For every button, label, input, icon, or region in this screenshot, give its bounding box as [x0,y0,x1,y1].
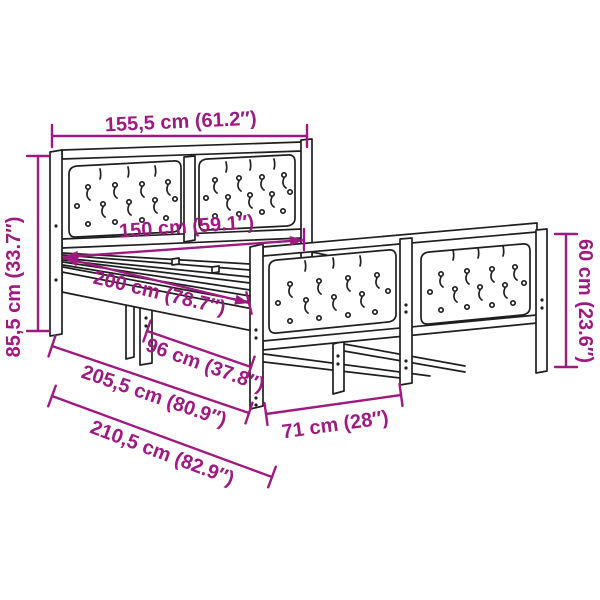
dimension-headboard-height: 85,5 cm (33.7″) [3,156,49,357]
dimension-label: 85,5 cm (33.7″) [3,217,25,358]
footboard-braces [264,341,465,394]
headboard-left-post [50,150,62,336]
slat-clip [212,266,219,273]
dimension-label: 155,5 cm (61.2″) [104,108,257,137]
dimension-label: 60 cm (23.6″) [574,239,596,363]
dimension-label: 71 cm (28″) [280,407,389,444]
dimension-footboard-height: 60 cm (23.6″) [555,234,596,367]
bed-frame-dimension-diagram: 155,5 cm (61.2″) 85,5 cm (33.7″) 150 cm … [0,0,600,600]
dimension-overall-width: 155,5 cm (61.2″) [52,108,307,147]
footboard-cushion-right [421,244,530,324]
diagram-canvas: 155,5 cm (61.2″) 85,5 cm (33.7″) 150 cm … [0,0,600,600]
footboard-support-leg [333,341,344,394]
footboard [250,223,547,409]
footboard-cushion-left [269,250,396,333]
slat-clip [172,258,179,265]
dimension-underbed-span: 96 cm (37.8″) [143,321,267,397]
